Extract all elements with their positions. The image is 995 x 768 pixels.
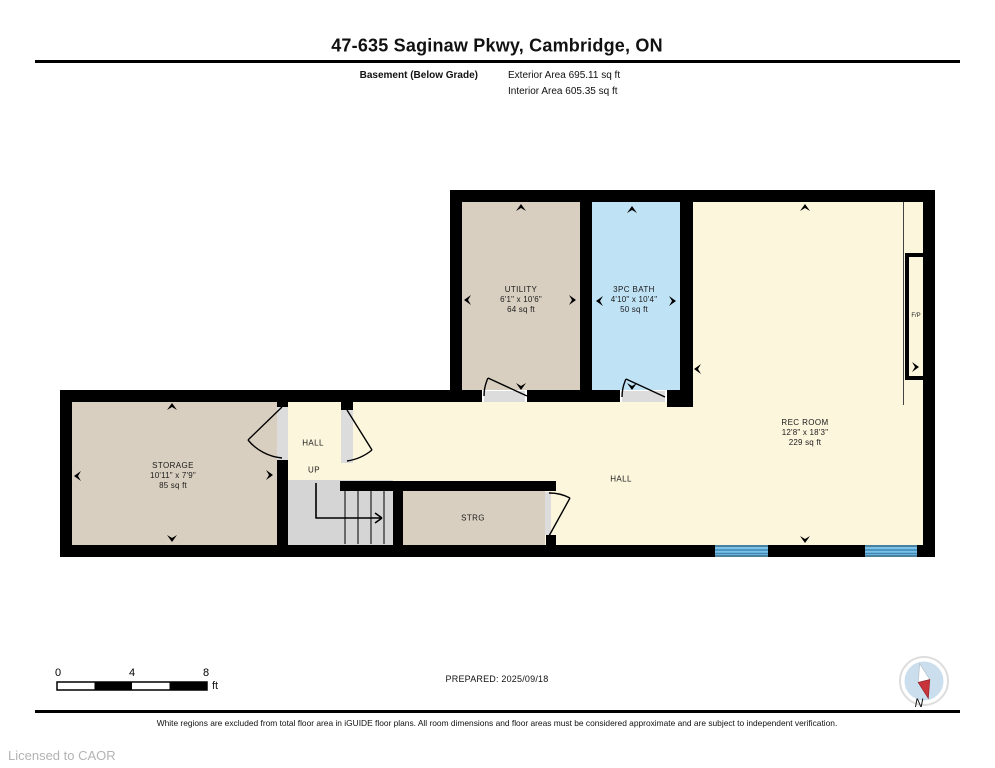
fireplace-label: F/P	[911, 313, 920, 319]
wall-segment	[462, 390, 482, 402]
compass-north-label: N	[915, 696, 924, 710]
footer-rule	[35, 710, 960, 713]
window-rec-right	[865, 545, 917, 557]
room-label-rec-room: REC ROOM 12'8" x 18'3" 229 sq ft	[781, 418, 828, 448]
room-name: REC ROOM	[781, 418, 828, 428]
wall-segment	[667, 390, 693, 407]
room-name: STORAGE	[150, 461, 196, 471]
prepared-date: PREPARED: 2025/09/18	[446, 674, 549, 684]
floor-label: Basement (Below Grade)	[360, 70, 478, 81]
room-label-utility: UTILITY 6'1" x 10'6" 64 sq ft	[500, 285, 542, 315]
scale-bar	[57, 682, 207, 690]
window-glass	[715, 545, 768, 557]
wall-segment	[277, 460, 288, 545]
wall-segment	[580, 202, 592, 390]
room-area: 50 sq ft	[611, 305, 657, 315]
exterior-area: Exterior Area 695.11 sq ft	[508, 70, 620, 81]
scale-tick-8: 8	[203, 667, 209, 679]
threshold-storage	[277, 407, 288, 460]
room-name: UTILITY	[500, 285, 542, 295]
wall-segment	[546, 535, 556, 545]
wall-segment	[60, 390, 462, 402]
scale-bar-segment	[95, 682, 133, 690]
room-area: 64 sq ft	[500, 305, 542, 315]
room-dims: 10'11" x 7'9"	[150, 471, 196, 481]
disclaimer-text: White regions are excluded from total fl…	[157, 718, 838, 728]
room-label-hall-small: HALL	[302, 439, 324, 448]
wall-segment	[60, 545, 935, 557]
room-dims: 6'1" x 10'6"	[500, 295, 542, 305]
scale-tick-0: 0	[55, 667, 61, 679]
wall-segment	[277, 402, 288, 407]
scale-unit: ft	[212, 680, 218, 692]
wall-segment	[60, 390, 72, 557]
room-label-storage: STORAGE 10'11" x 7'9" 85 sq ft	[150, 461, 196, 491]
stairs-up-label: UP	[308, 466, 320, 475]
wall-segment	[680, 202, 693, 407]
floorplan	[0, 0, 995, 768]
wall-segment	[450, 190, 462, 402]
wall-segment	[450, 190, 935, 202]
wall-segment	[340, 481, 556, 491]
room-area: 229 sq ft	[781, 438, 828, 448]
scale-tick-4: 4	[129, 667, 135, 679]
interior-area: Interior Area 605.35 sq ft	[508, 86, 618, 97]
room-label-strg: STRG	[461, 514, 485, 523]
wall-segment	[393, 481, 403, 545]
floor-fills	[72, 202, 935, 557]
page-title: 47-635 Saginaw Pkwy, Cambridge, ON	[331, 36, 663, 57]
rec-room-floor	[686, 202, 935, 557]
room-label-bath: 3PC BATH 4'10" x 10'4" 50 sq ft	[611, 285, 657, 315]
room-area: 85 sq ft	[150, 481, 196, 491]
room-label-hall-main: HALL	[610, 475, 632, 484]
room-dims: 4'10" x 10'4"	[611, 295, 657, 305]
threshold-bath	[622, 391, 665, 402]
window-glass	[865, 545, 917, 557]
window-rec-left	[715, 545, 768, 557]
wall-segment	[527, 390, 620, 402]
room-dims: 12'8" x 18'3"	[781, 428, 828, 438]
license-note: Licensed to CAOR	[8, 748, 116, 763]
scale-bar-segment	[170, 682, 208, 690]
compass-icon	[900, 657, 948, 705]
header-rule	[35, 60, 960, 63]
threshold-strg	[545, 492, 551, 535]
room-name: 3PC BATH	[611, 285, 657, 295]
wall-segment	[341, 390, 353, 410]
